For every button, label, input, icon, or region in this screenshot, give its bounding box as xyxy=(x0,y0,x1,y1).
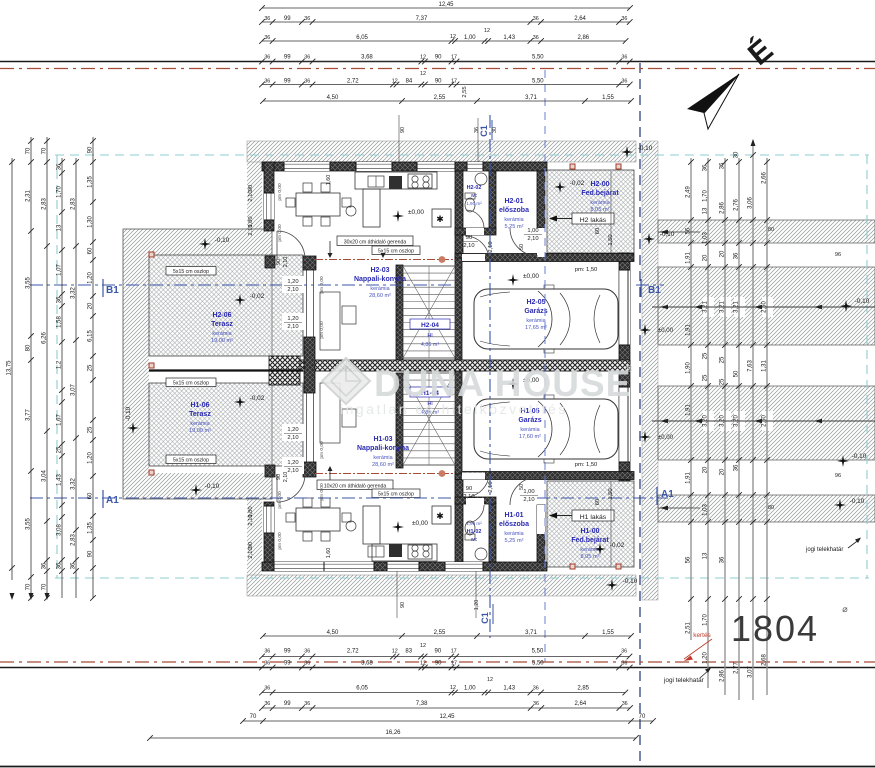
svg-text:70: 70 xyxy=(639,714,646,720)
svg-text:12: 12 xyxy=(392,79,398,85)
svg-text:36: 36 xyxy=(71,562,77,569)
svg-text:25: 25 xyxy=(703,374,709,381)
svg-text:36: 36 xyxy=(304,79,310,85)
svg-text:12: 12 xyxy=(392,649,398,655)
svg-text:1,70: 1,70 xyxy=(57,186,63,198)
svg-text:70: 70 xyxy=(42,147,48,154)
svg-text:36: 36 xyxy=(304,701,310,707)
svg-text:pm 0,00: pm 0,00 xyxy=(277,183,283,201)
svg-text:56: 56 xyxy=(686,556,692,563)
svg-text:1,00: 1,00 xyxy=(527,228,538,234)
svg-text:kerámia: kerámia xyxy=(504,531,523,537)
svg-text:36: 36 xyxy=(57,562,63,569)
svg-text:36: 36 xyxy=(264,649,270,655)
svg-text:-0,10: -0,10 xyxy=(852,453,867,460)
svg-text:6,15: 6,15 xyxy=(88,330,94,342)
svg-text:20: 20 xyxy=(703,466,709,473)
svg-text:1,91: 1,91 xyxy=(686,252,692,264)
svg-text:1,67: 1,67 xyxy=(57,414,63,426)
svg-text:10x20 cm áthidaló gerenda: 10x20 cm áthidaló gerenda xyxy=(324,484,387,490)
svg-text:1,91: 1,91 xyxy=(686,324,692,336)
svg-text:5x15 cm oszlop: 5x15 cm oszlop xyxy=(173,458,209,464)
svg-text:2,10: 2,10 xyxy=(463,494,474,500)
svg-text:36: 36 xyxy=(264,35,270,41)
svg-text:30: 30 xyxy=(492,127,498,133)
svg-text:pm 0,00: pm 0,00 xyxy=(277,224,283,242)
svg-text:kerámia: kerámia xyxy=(370,286,389,292)
svg-text:90: 90 xyxy=(400,127,406,133)
svg-text:pm 0,00: pm 0,00 xyxy=(319,441,325,459)
svg-text:99: 99 xyxy=(284,661,291,667)
svg-text:36: 36 xyxy=(264,16,270,22)
svg-text:36: 36 xyxy=(734,464,740,471)
svg-text:36: 36 xyxy=(720,556,726,563)
svg-text:H2-01: H2-01 xyxy=(504,198,523,205)
svg-text:8,05 m²: 8,05 m² xyxy=(581,554,600,560)
svg-text:30x20 cm áthidaló gerenda: 30x20 cm áthidaló gerenda xyxy=(344,240,407,246)
svg-text:1,90 m²: 1,90 m² xyxy=(466,521,482,526)
svg-text:3,71: 3,71 xyxy=(525,95,537,101)
svg-text:2,10: 2,10 xyxy=(287,435,298,441)
svg-text:1,20: 1,20 xyxy=(287,279,298,285)
svg-text:7,38: 7,38 xyxy=(416,701,428,707)
svg-text:13: 13 xyxy=(703,207,709,214)
svg-text:-0,10: -0,10 xyxy=(125,406,132,421)
svg-text:90: 90 xyxy=(435,649,442,655)
svg-text:2,10: 2,10 xyxy=(463,243,474,249)
svg-text:kerámia: kerámia xyxy=(373,455,392,461)
svg-text:3,08: 3,08 xyxy=(57,524,63,536)
svg-text:1,70: 1,70 xyxy=(703,190,709,202)
svg-text:H2-04: H2-04 xyxy=(421,322,439,329)
svg-text:4,86 m²: 4,86 m² xyxy=(421,342,439,348)
svg-text:3,68: 3,68 xyxy=(361,661,373,667)
svg-text:3,04: 3,04 xyxy=(42,470,48,482)
svg-text:2,10: 2,10 xyxy=(488,241,494,252)
svg-text:50: 50 xyxy=(734,370,740,377)
svg-text:2,10: 2,10 xyxy=(248,514,254,525)
svg-text:2,64: 2,64 xyxy=(575,701,587,707)
svg-text:-0,10: -0,10 xyxy=(855,298,870,305)
svg-text:36: 36 xyxy=(621,661,627,667)
svg-text:28,60 m²: 28,60 m² xyxy=(369,293,391,299)
svg-text:2,10: 2,10 xyxy=(287,287,298,293)
svg-text:H1-01: H1-01 xyxy=(504,512,523,519)
svg-text:99: 99 xyxy=(284,79,291,85)
svg-text:2,83: 2,83 xyxy=(71,534,77,546)
svg-text:előszoba: előszoba xyxy=(499,207,529,214)
svg-text:50: 50 xyxy=(519,484,525,490)
svg-text:Nappali-konyha: Nappali-konyha xyxy=(354,276,406,283)
svg-text:Terasz: Terasz xyxy=(189,411,211,418)
svg-text:36: 36 xyxy=(474,127,480,133)
svg-text:pm 0,00: pm 0,00 xyxy=(319,276,325,294)
svg-text:1,90 m²: 1,90 m² xyxy=(466,201,482,206)
svg-text:B1: B1 xyxy=(106,285,119,296)
svg-text:36: 36 xyxy=(304,16,310,22)
svg-text:1,00: 1,00 xyxy=(523,489,534,495)
svg-text:2,72: 2,72 xyxy=(347,79,359,85)
svg-text:36: 36 xyxy=(533,686,539,692)
svg-text:1,35: 1,35 xyxy=(88,176,94,188)
svg-text:50: 50 xyxy=(519,244,525,250)
svg-text:3,32: 3,32 xyxy=(71,287,77,299)
svg-text:2,49: 2,49 xyxy=(686,186,692,198)
svg-text:25: 25 xyxy=(88,426,94,433)
svg-text:2,55: 2,55 xyxy=(434,630,446,636)
svg-text:Fed.bejárat: Fed.bejárat xyxy=(581,190,619,197)
svg-text:1,07: 1,07 xyxy=(57,264,63,276)
svg-text:±0,00: ±0,00 xyxy=(408,209,424,216)
svg-text:13: 13 xyxy=(703,552,709,559)
svg-text:96: 96 xyxy=(835,473,841,479)
svg-text:2,10: 2,10 xyxy=(283,257,289,268)
svg-text:2,64: 2,64 xyxy=(574,16,586,22)
svg-text:-0,02: -0,02 xyxy=(570,180,585,187)
svg-text:12: 12 xyxy=(420,55,426,61)
svg-text:H1-06: H1-06 xyxy=(190,402,209,409)
svg-text:C1: C1 xyxy=(479,125,489,137)
svg-text:12: 12 xyxy=(484,28,490,34)
svg-text:Fed.bejárat: Fed.bejárat xyxy=(571,537,609,544)
svg-text:8,05 m²: 8,05 m² xyxy=(591,207,610,213)
svg-text:kerámia: kerámia xyxy=(190,421,209,427)
svg-text:3,71: 3,71 xyxy=(525,630,537,636)
svg-text:2,77: 2,77 xyxy=(734,662,740,674)
svg-text:90: 90 xyxy=(248,185,254,191)
svg-text:DUNA HOUSE: DUNA HOUSE xyxy=(374,363,631,404)
svg-text:36: 36 xyxy=(622,701,628,707)
svg-text:1,03: 1,03 xyxy=(703,504,709,516)
svg-text:5,50: 5,50 xyxy=(532,661,544,667)
svg-text:⌀: ⌀ xyxy=(842,604,848,614)
svg-text:36: 36 xyxy=(621,79,627,85)
svg-text:5,50: 5,50 xyxy=(532,55,544,61)
svg-text:7,37: 7,37 xyxy=(416,16,428,22)
svg-text:B1: B1 xyxy=(648,285,661,296)
svg-text:80: 80 xyxy=(768,505,774,511)
svg-text:2,83: 2,83 xyxy=(71,198,77,210)
svg-text:17: 17 xyxy=(451,55,457,61)
svg-text:60: 60 xyxy=(595,499,601,505)
svg-text:25: 25 xyxy=(57,446,63,453)
svg-text:2,86: 2,86 xyxy=(720,670,726,682)
svg-text:Garázs: Garázs xyxy=(518,417,541,424)
svg-text:17: 17 xyxy=(451,79,457,85)
svg-text:36: 36 xyxy=(304,661,310,667)
svg-text:2,10: 2,10 xyxy=(248,224,254,235)
svg-text:25: 25 xyxy=(720,356,726,363)
svg-text:90: 90 xyxy=(435,661,442,667)
svg-text:16,26: 16,26 xyxy=(385,730,401,736)
svg-text:3,55: 3,55 xyxy=(26,277,32,289)
svg-text:36: 36 xyxy=(264,55,270,61)
svg-text:wc: wc xyxy=(471,193,478,199)
svg-text:Hl: Hl xyxy=(427,333,432,339)
svg-text:70: 70 xyxy=(250,714,257,720)
svg-text:-0,10: -0,10 xyxy=(638,145,653,152)
svg-text:1,00: 1,00 xyxy=(464,35,476,41)
svg-text:ingatlan és hitelközvetítés: ingatlan és hitelközvetítés xyxy=(340,401,568,417)
svg-text:C1: C1 xyxy=(480,612,490,624)
svg-text:90: 90 xyxy=(88,550,94,557)
svg-text:3,77: 3,77 xyxy=(26,409,32,421)
svg-text:1,03: 1,03 xyxy=(703,232,709,244)
svg-text:-0,10: -0,10 xyxy=(215,237,230,244)
svg-text:25: 25 xyxy=(703,352,709,359)
svg-text:90: 90 xyxy=(435,79,442,85)
svg-text:3,55: 3,55 xyxy=(26,518,32,530)
svg-text:12,45: 12,45 xyxy=(438,2,454,8)
svg-text:jogi telekhatár: jogi telekhatár xyxy=(805,547,843,553)
svg-text:1,20: 1,20 xyxy=(287,427,298,433)
svg-text:13: 13 xyxy=(57,224,63,231)
svg-text:28,60 m²: 28,60 m² xyxy=(372,462,394,468)
svg-text:1,43: 1,43 xyxy=(57,474,63,486)
svg-text:1,91: 1,91 xyxy=(686,472,692,484)
svg-text:✱: ✱ xyxy=(436,214,444,224)
svg-text:±0,00: ±0,00 xyxy=(523,273,539,280)
svg-text:2,51: 2,51 xyxy=(686,622,692,634)
svg-text:2,10: 2,10 xyxy=(287,324,298,330)
svg-text:kerámia: kerámia xyxy=(520,427,539,433)
svg-text:2,10: 2,10 xyxy=(287,468,298,474)
svg-text:17: 17 xyxy=(451,661,457,667)
svg-text:1,00: 1,00 xyxy=(464,686,476,692)
svg-text:2,76: 2,76 xyxy=(734,199,740,211)
svg-text:-0,10: -0,10 xyxy=(623,578,638,585)
svg-text:2,10: 2,10 xyxy=(527,236,538,242)
svg-text:6,05: 6,05 xyxy=(356,686,368,692)
svg-text:84: 84 xyxy=(406,79,413,85)
svg-text:90: 90 xyxy=(248,542,254,548)
svg-text:H1-02: H1-02 xyxy=(467,529,482,535)
svg-text:83: 83 xyxy=(405,649,412,655)
svg-text:1,20: 1,20 xyxy=(703,652,709,664)
svg-text:90: 90 xyxy=(435,55,442,61)
svg-text:H2-02: H2-02 xyxy=(467,185,482,191)
svg-text:H1 lakás: H1 lakás xyxy=(580,514,607,521)
svg-text:1,91: 1,91 xyxy=(686,404,692,416)
svg-text:pm: 1,50: pm: 1,50 xyxy=(575,462,598,468)
svg-text:1,20: 1,20 xyxy=(474,600,480,611)
svg-text:2,10: 2,10 xyxy=(248,547,254,558)
svg-text:1,70: 1,70 xyxy=(703,614,709,626)
svg-text:12: 12 xyxy=(450,685,456,691)
svg-text:60: 60 xyxy=(88,492,94,499)
svg-text:56: 56 xyxy=(686,227,692,234)
svg-text:1,90: 1,90 xyxy=(686,362,692,374)
svg-text:pm 0,00: pm 0,00 xyxy=(319,321,325,339)
svg-text:12: 12 xyxy=(487,677,493,683)
svg-text:36: 36 xyxy=(621,649,627,655)
svg-text:±0,00: ±0,00 xyxy=(658,328,674,334)
svg-text:99: 99 xyxy=(284,16,291,22)
svg-text:90: 90 xyxy=(400,602,406,608)
svg-text:5x15 cm oszlop: 5x15 cm oszlop xyxy=(378,492,414,498)
svg-text:kerámia: kerámia xyxy=(212,331,231,337)
svg-text:H2-05: H2-05 xyxy=(526,299,545,306)
svg-text:5x15 cm oszlop: 5x15 cm oszlop xyxy=(173,381,209,387)
svg-text:2,55: 2,55 xyxy=(434,95,446,101)
svg-text:kerámia: kerámia xyxy=(590,200,609,206)
svg-text:90: 90 xyxy=(276,259,282,265)
svg-text:17: 17 xyxy=(451,649,457,655)
svg-text:pm 0,00: pm 0,00 xyxy=(319,483,325,501)
svg-text:3,07: 3,07 xyxy=(748,666,754,678)
svg-text:12: 12 xyxy=(420,643,426,649)
svg-text:12,45: 12,45 xyxy=(439,714,455,720)
svg-text:96: 96 xyxy=(835,252,841,258)
svg-text:-0,10: -0,10 xyxy=(205,483,220,490)
svg-text:36: 36 xyxy=(264,79,270,85)
svg-text:2,10: 2,10 xyxy=(283,472,289,483)
svg-text:1,2: 1,2 xyxy=(57,360,63,369)
svg-text:36: 36 xyxy=(264,661,270,667)
svg-text:2,10: 2,10 xyxy=(248,190,254,201)
svg-text:20: 20 xyxy=(703,254,709,261)
svg-text:2,66: 2,66 xyxy=(762,172,768,184)
svg-text:6,05: 6,05 xyxy=(356,35,368,41)
svg-text:5x15 cm oszlop: 5x15 cm oszlop xyxy=(173,269,209,275)
svg-text:60: 60 xyxy=(595,228,601,234)
svg-text:4,50: 4,50 xyxy=(327,95,339,101)
svg-text:®: ® xyxy=(625,364,633,375)
svg-text:pm 0,00: pm 0,00 xyxy=(277,532,283,550)
svg-text:99: 99 xyxy=(284,649,291,655)
svg-text:kerámia: kerámia xyxy=(504,217,523,223)
svg-text:jogi telekhatár: jogi telekhatár xyxy=(663,677,705,684)
svg-text:19,00 m²: 19,00 m² xyxy=(211,338,233,344)
svg-text:2,83: 2,83 xyxy=(42,198,48,210)
svg-text:1,35: 1,35 xyxy=(88,522,94,534)
svg-text:wc: wc xyxy=(471,537,478,543)
svg-text:99: 99 xyxy=(284,701,291,707)
svg-text:80: 80 xyxy=(26,344,32,351)
svg-text:36: 36 xyxy=(533,35,539,41)
svg-text:70: 70 xyxy=(26,147,32,154)
svg-text:3,07: 3,07 xyxy=(71,384,77,396)
svg-text:4,50: 4,50 xyxy=(327,630,339,636)
svg-text:2,72: 2,72 xyxy=(347,649,359,655)
svg-text:36: 36 xyxy=(264,701,270,707)
svg-text:1,20: 1,20 xyxy=(287,460,298,466)
svg-text:80: 80 xyxy=(768,227,774,233)
svg-text:H2-00: H2-00 xyxy=(590,181,609,188)
svg-text:előszoba: előszoba xyxy=(499,521,529,528)
svg-text:99: 99 xyxy=(284,55,291,61)
svg-text:36: 36 xyxy=(533,701,539,707)
svg-text:Garázs: Garázs xyxy=(524,308,547,315)
svg-text:1,20: 1,20 xyxy=(88,452,94,464)
svg-text:25: 25 xyxy=(720,378,726,385)
svg-text:17,65 m²: 17,65 m² xyxy=(525,325,547,331)
svg-text:pm 0,00: pm 0,00 xyxy=(277,491,283,509)
svg-text:36: 36 xyxy=(264,686,270,692)
svg-text:1,20: 1,20 xyxy=(287,316,298,322)
svg-text:12: 12 xyxy=(450,34,456,40)
svg-text:5,25 m²: 5,25 m² xyxy=(505,538,524,544)
svg-text:±0,00: ±0,00 xyxy=(658,435,674,441)
svg-text:90: 90 xyxy=(88,146,94,153)
svg-text:-0,10: -0,10 xyxy=(660,231,675,238)
svg-text:20: 20 xyxy=(88,302,94,309)
svg-text:36: 36 xyxy=(533,16,539,22)
svg-text:36: 36 xyxy=(703,164,709,171)
svg-text:A1: A1 xyxy=(106,495,119,506)
svg-text:pm: 1,50: pm: 1,50 xyxy=(575,267,598,273)
svg-text:5,25 m²: 5,25 m² xyxy=(505,224,524,230)
svg-text:1,43: 1,43 xyxy=(503,686,515,692)
svg-text:7,63: 7,63 xyxy=(748,360,754,372)
svg-text:kerámia: kerámia xyxy=(580,547,599,553)
svg-text:20: 20 xyxy=(720,468,726,475)
svg-text:3,68: 3,68 xyxy=(361,55,373,61)
svg-text:1804: 1804 xyxy=(731,608,819,649)
svg-text:90: 90 xyxy=(276,474,282,480)
svg-text:2,10: 2,10 xyxy=(488,481,494,492)
svg-text:30: 30 xyxy=(734,151,740,158)
svg-text:✱: ✱ xyxy=(436,511,444,521)
svg-text:6,26: 6,26 xyxy=(42,332,48,344)
svg-text:25: 25 xyxy=(88,364,94,371)
svg-text:36: 36 xyxy=(57,296,63,303)
svg-text:1,60: 1,60 xyxy=(326,175,332,186)
svg-text:36: 36 xyxy=(304,649,310,655)
svg-text:-0,10: -0,10 xyxy=(850,498,865,505)
svg-text:12: 12 xyxy=(420,71,426,77)
svg-text:kerámia: kerámia xyxy=(526,318,545,324)
svg-text:36: 36 xyxy=(42,562,48,569)
svg-text:36: 36 xyxy=(304,55,310,61)
svg-text:1,55: 1,55 xyxy=(602,630,614,636)
svg-text:A1: A1 xyxy=(661,489,674,500)
svg-text:12: 12 xyxy=(420,661,426,667)
svg-text:-0,02: -0,02 xyxy=(610,542,625,549)
svg-text:kertés: kertés xyxy=(693,632,710,639)
svg-text:13,75: 13,75 xyxy=(7,360,13,376)
svg-text:H2-06: H2-06 xyxy=(212,312,231,319)
svg-text:36: 36 xyxy=(621,55,627,61)
svg-text:90: 90 xyxy=(466,235,472,241)
svg-text:3,06: 3,06 xyxy=(748,197,754,209)
svg-text:±0,00: ±0,00 xyxy=(412,520,428,527)
svg-text:19,00 m²: 19,00 m² xyxy=(189,428,211,434)
svg-text:2,86: 2,86 xyxy=(720,202,726,214)
svg-text:Nappali-konyha: Nappali-konyha xyxy=(357,445,409,452)
svg-text:90: 90 xyxy=(466,486,472,492)
svg-text:2,55: 2,55 xyxy=(462,86,468,97)
svg-text:H1-03: H1-03 xyxy=(373,436,392,443)
svg-text:17,60 m²: 17,60 m² xyxy=(519,434,541,440)
svg-text:1,55: 1,55 xyxy=(602,95,614,101)
svg-text:36: 36 xyxy=(621,16,627,22)
svg-text:1,30: 1,30 xyxy=(88,216,94,228)
svg-text:60: 60 xyxy=(88,247,94,254)
svg-text:5,50: 5,50 xyxy=(532,79,544,85)
svg-text:36: 36 xyxy=(734,252,740,259)
svg-text:1,20: 1,20 xyxy=(88,272,94,284)
svg-text:1,58: 1,58 xyxy=(57,316,63,328)
svg-text:20: 20 xyxy=(720,250,726,257)
svg-text:2,85: 2,85 xyxy=(577,686,589,692)
svg-text:-0,02: -0,02 xyxy=(250,293,265,300)
svg-text:1,31: 1,31 xyxy=(762,360,768,372)
svg-text:5,50: 5,50 xyxy=(532,649,544,655)
svg-text:H2-03: H2-03 xyxy=(370,267,389,274)
svg-text:2,31: 2,31 xyxy=(26,190,32,202)
svg-text:36: 36 xyxy=(57,163,63,170)
